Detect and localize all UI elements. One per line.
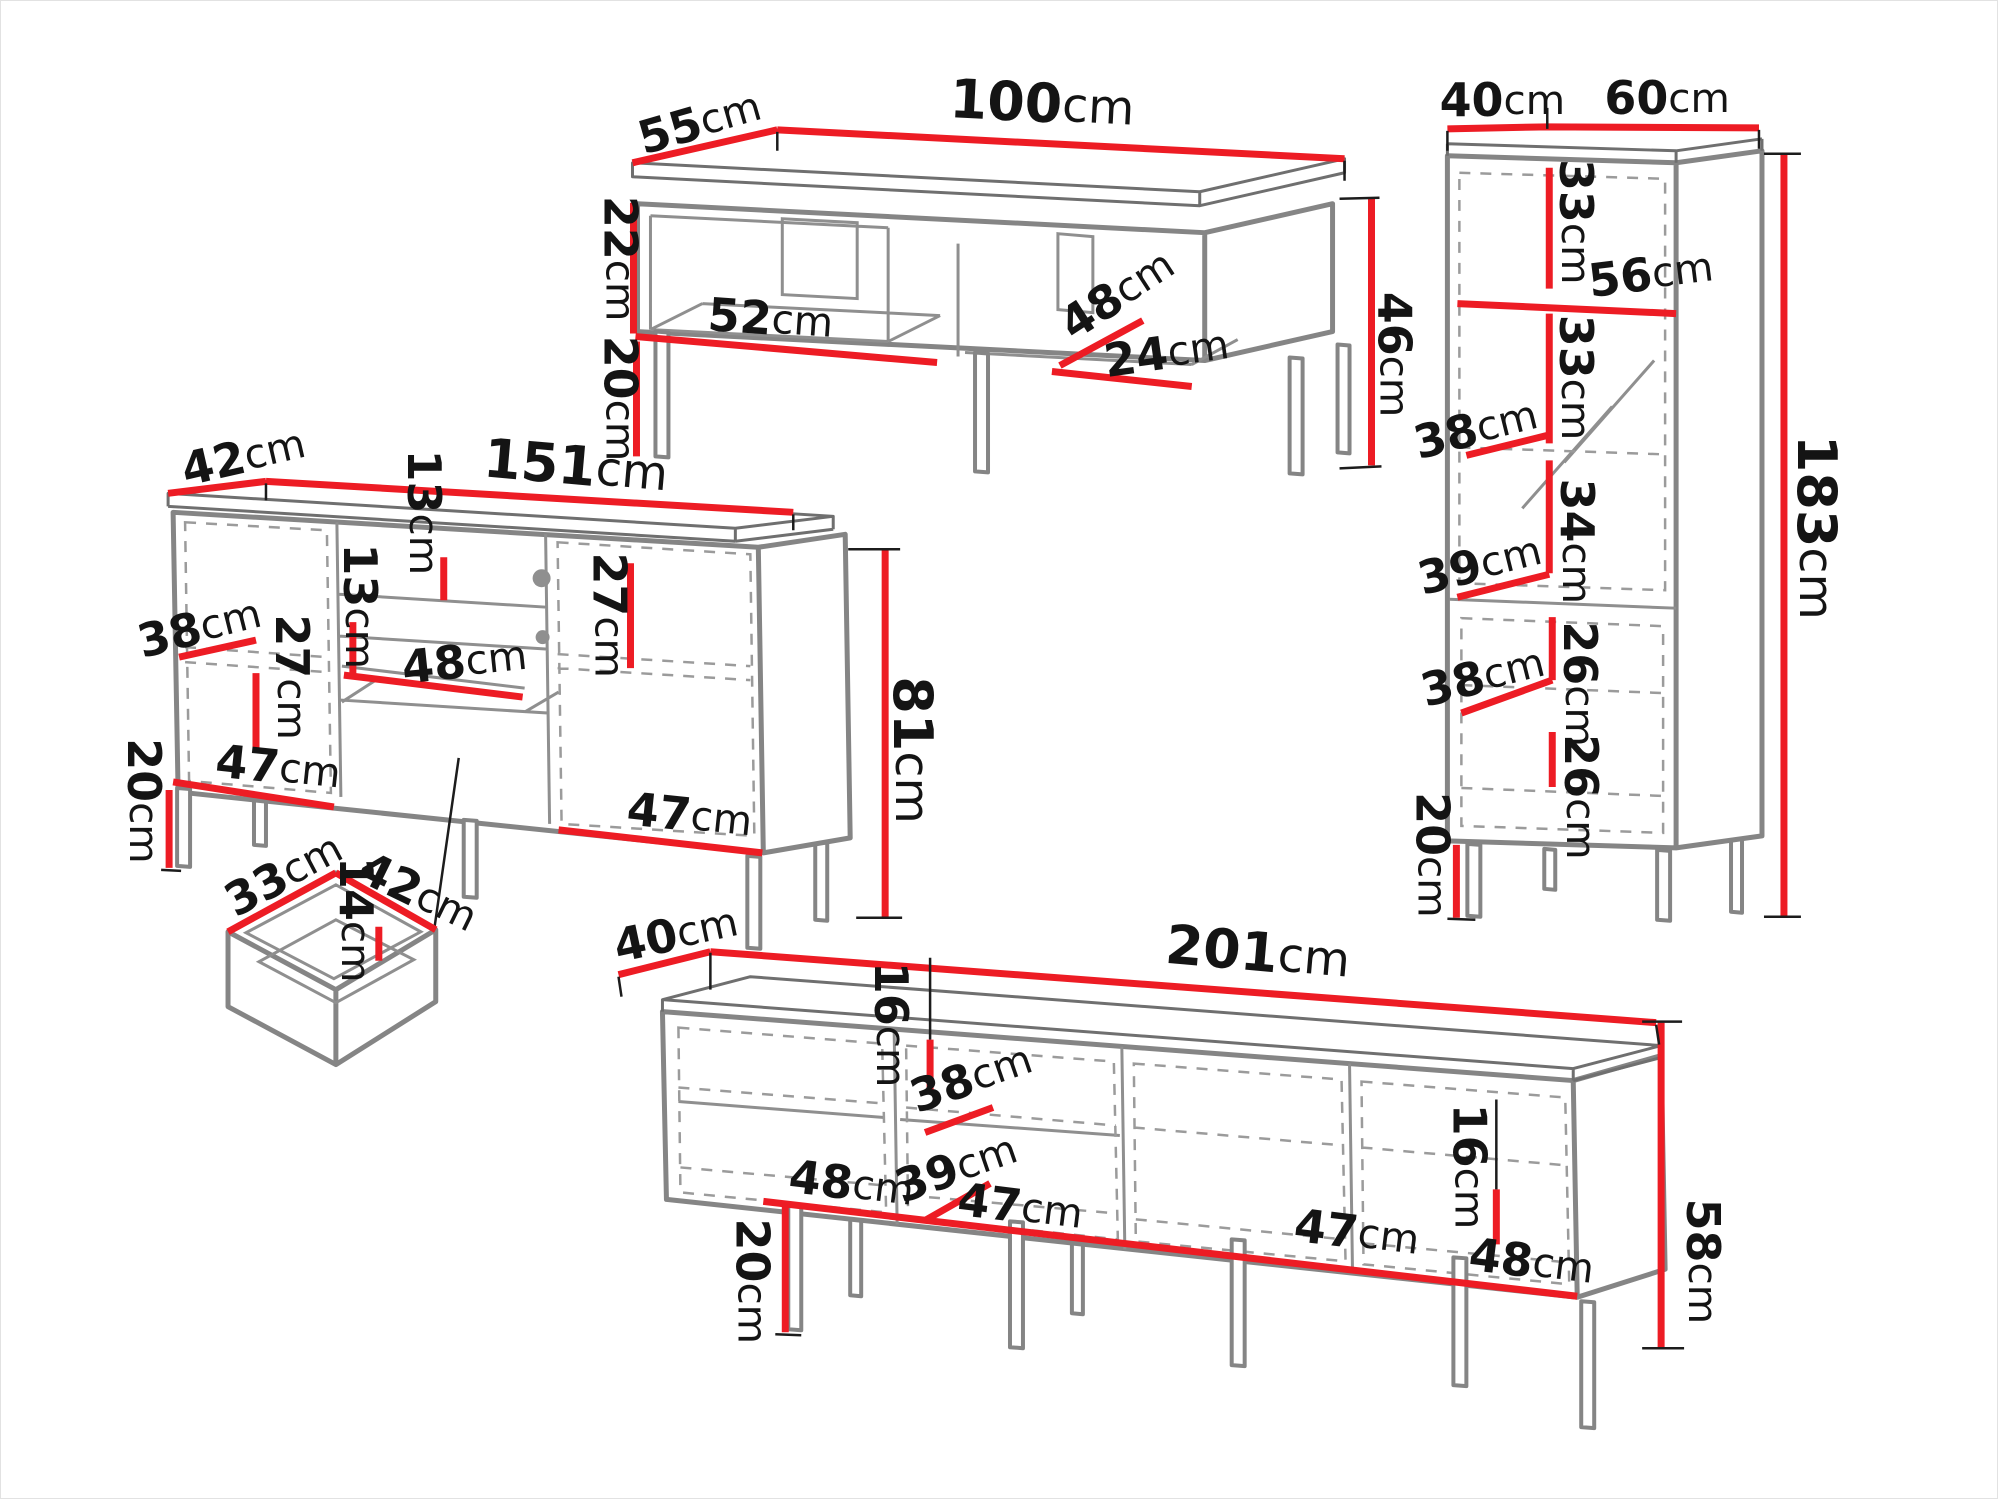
dim-unit: cm (336, 607, 384, 669)
dim-value: 14 (329, 857, 383, 921)
dim-sideboard-leg-height: 20cm (118, 738, 172, 863)
dim-value: 201 (1163, 912, 1281, 985)
dim-unit: cm (586, 616, 634, 678)
dim-unit: cm (1530, 1238, 1597, 1293)
sideboard-drawer-knob (533, 569, 551, 587)
dim-cabinet-leg-height: 20cm (1406, 792, 1460, 917)
dim-value: 20 (594, 336, 648, 400)
dim-unit: cm (1408, 856, 1456, 918)
coffee-table-back-leg (1338, 345, 1350, 454)
tall-cabinet: 40cm 60cm 33cm 56cm 33cm 38cm 34cm 39cm … (1406, 70, 1848, 920)
dim-value: 26 (1554, 621, 1608, 685)
dim-unit: cm (688, 791, 754, 845)
dim-tv-top-width: 201cm (1163, 912, 1353, 991)
dim-unit: cm (1019, 1183, 1086, 1238)
dim-tv-right-shelf-height: 16cm (1443, 1104, 1497, 1229)
dim-unit: cm (400, 513, 448, 575)
dim-unit: cm (1061, 78, 1136, 137)
dim-cabinet-middle-shelf-height: 34cm (1551, 479, 1605, 604)
dim-unit: cm (728, 1282, 776, 1344)
sideboard-drawer-knob (536, 630, 550, 644)
dim-value: 16 (865, 962, 919, 1026)
dim-unit: cm (1355, 1209, 1422, 1264)
dim-unit: cm (1557, 798, 1605, 860)
furniture-dimension-diagram: 55cm 100cm 22cm 20cm 52cm 48cm 24cm 46cm… (0, 0, 1998, 1499)
dim-unit: cm (1164, 320, 1232, 376)
dim-cabinet-bottom-shelf-height: 26cm (1555, 734, 1609, 859)
dim-sideboard-left-interior-height: 27cm (265, 614, 319, 739)
dim-value: 27 (583, 552, 637, 616)
dim-value: 58 (1677, 1199, 1731, 1263)
dim-unit: cm (672, 897, 742, 957)
dim-cabinet-total-height: 183cm (1785, 435, 1848, 620)
dim-value: 81 (881, 676, 944, 751)
dim-value: 40 (1440, 72, 1504, 126)
dim-unit: cm (1276, 928, 1353, 989)
dim-value: 60 (1604, 70, 1668, 124)
dim-drawer-height: 14cm (329, 857, 383, 982)
dim-value: 13 (333, 543, 387, 607)
dim-value: 13 (397, 450, 451, 514)
dim-sideboard-right-interior-height: 27cm (583, 552, 637, 677)
dim-tv-total-height: 58cm (1677, 1199, 1731, 1324)
dim-value: 33 (1550, 315, 1604, 379)
dim-unit: cm (463, 631, 529, 685)
dim-unit: cm (1370, 356, 1418, 418)
dim-value: 27 (265, 614, 319, 678)
dim-value: 100 (948, 67, 1064, 136)
dim-value: 47 (1291, 1197, 1361, 1258)
dim-value: 183 (1785, 435, 1848, 548)
dim-unit: cm (1668, 74, 1730, 122)
dim-value: 48 (786, 1148, 856, 1209)
diagram-canvas: 55cm 100cm 22cm 20cm 52cm 48cm 24cm 46cm… (1, 1, 1997, 1498)
dim-value: 52 (706, 287, 774, 345)
dim-coffee-total-height: 46cm (1368, 292, 1422, 417)
dim-unit: cm (597, 260, 645, 322)
dim-unit: cm (593, 441, 670, 502)
dim-tv-leg-height: 20cm (726, 1219, 780, 1344)
tv-stand: 40cm 201cm 16cm 38cm 48cm 39cm 47cm 47cm… (609, 894, 1731, 1428)
dim-value: 24 (1100, 325, 1171, 387)
dim-value: 48 (399, 634, 468, 694)
dim-value: 56 (1585, 246, 1655, 307)
dim-value: 20 (118, 738, 172, 802)
dim-cabinet-lower-shelf-height: 26cm (1554, 621, 1608, 746)
dim-value: 22 (594, 196, 648, 260)
coffee-table: 55cm 100cm 22cm 20cm 52cm 48cm 24cm 46cm (594, 67, 1422, 475)
dim-cabinet-top-width: 60cm (1604, 70, 1729, 124)
dim-value: 34 (1551, 479, 1605, 543)
dim-unit: cm (884, 751, 939, 823)
dim-value: 151 (481, 426, 599, 499)
dim-tv-top-depth: 40cm (609, 894, 743, 973)
dim-unit: cm (1445, 1168, 1493, 1230)
dim-unit: cm (1552, 379, 1600, 441)
dim-value: 20 (1406, 792, 1460, 856)
dim-value: 33 (1550, 159, 1604, 223)
dim-unit: cm (277, 743, 343, 797)
dim-unit: cm (1553, 542, 1601, 604)
dim-cabinet-second-shelf-height: 33cm (1550, 315, 1604, 440)
dim-coffee-body-height: 22cm (594, 196, 648, 321)
dim-unit: cm (332, 921, 380, 983)
dim-coffee-top-depth: 55cm (632, 78, 768, 164)
dim-value: 16 (1443, 1104, 1497, 1168)
dim-unit: cm (1503, 76, 1565, 124)
dim-unit: cm (1679, 1262, 1727, 1324)
dim-unit: cm (268, 678, 316, 740)
dim-coffee-top-width: 100cm (948, 67, 1136, 140)
dim-sideboard-lower-drawer-height: 13cm (333, 543, 387, 668)
dim-unit: cm (1649, 242, 1716, 297)
dim-cabinet-top-depth: 40cm (1440, 72, 1565, 126)
dim-value: 47 (213, 733, 282, 793)
dim-sideboard-total-height: 81cm (881, 676, 944, 823)
dim-value: 46 (1368, 292, 1422, 356)
dim-value: 47 (955, 1171, 1025, 1232)
dim-sideboard-upper-drawer-height: 13cm (397, 450, 451, 575)
dim-unit: cm (770, 295, 835, 347)
dim-unit: cm (120, 802, 168, 864)
drawer-inset: 33cm 42cm 14cm (215, 820, 486, 1064)
dim-unit: cm (239, 419, 310, 480)
dim-value: 48 (1466, 1226, 1536, 1287)
dim-value: 20 (726, 1219, 780, 1283)
dim-value: 47 (625, 781, 694, 841)
dim-value: 26 (1555, 734, 1609, 798)
dim-unit: cm (1788, 547, 1843, 619)
